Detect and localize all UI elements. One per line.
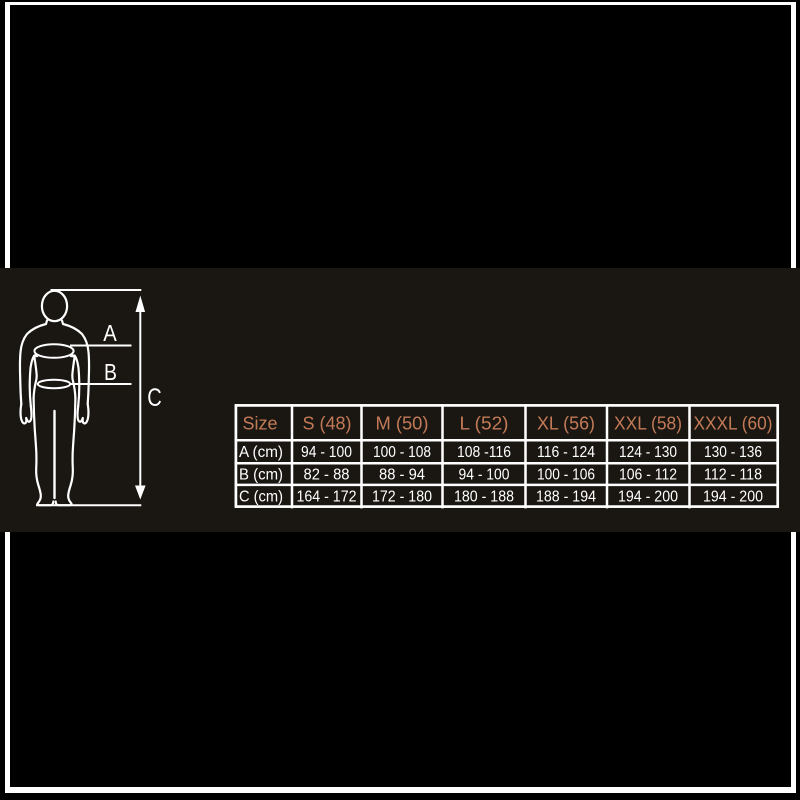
svg-text:100 - 106: 100 - 106 bbox=[537, 467, 595, 484]
svg-text:M (50): M (50) bbox=[376, 414, 429, 434]
svg-text:XXL (58): XXL (58) bbox=[614, 414, 682, 434]
svg-text:B: B bbox=[104, 359, 117, 385]
svg-text:100 - 108: 100 - 108 bbox=[373, 444, 431, 461]
svg-text:164 - 172: 164 - 172 bbox=[297, 489, 357, 506]
svg-text:B (cm): B (cm) bbox=[239, 467, 283, 484]
svg-text:116 - 124: 116 - 124 bbox=[537, 444, 595, 461]
svg-text:XXXL (60): XXXL (60) bbox=[694, 414, 773, 434]
svg-text:94 - 100: 94 - 100 bbox=[301, 444, 352, 461]
svg-text:94 - 100: 94 - 100 bbox=[459, 467, 510, 484]
svg-text:130 - 136: 130 - 136 bbox=[704, 444, 762, 461]
svg-text:108 -116: 108 -116 bbox=[457, 444, 511, 461]
svg-text:A: A bbox=[103, 320, 117, 346]
svg-text:112 - 118: 112 - 118 bbox=[704, 467, 762, 484]
svg-text:124 - 130: 124 - 130 bbox=[619, 444, 677, 461]
svg-text:XL (56): XL (56) bbox=[537, 414, 595, 434]
svg-text:180 - 188: 180 - 188 bbox=[454, 489, 514, 506]
svg-text:C: C bbox=[147, 384, 162, 412]
svg-text:A (cm): A (cm) bbox=[239, 444, 283, 461]
svg-text:S (48): S (48) bbox=[303, 414, 352, 434]
svg-text:106 - 112: 106 - 112 bbox=[619, 467, 677, 484]
svg-text:82 - 88: 82 - 88 bbox=[304, 467, 350, 484]
svg-text:88 - 94: 88 - 94 bbox=[379, 467, 425, 484]
svg-text:172 - 180: 172 - 180 bbox=[372, 489, 432, 506]
svg-text:188 - 194: 188 - 194 bbox=[536, 489, 596, 506]
svg-text:L (52): L (52) bbox=[460, 414, 509, 434]
svg-text:C (cm): C (cm) bbox=[239, 489, 283, 506]
svg-text:Size: Size bbox=[243, 414, 278, 434]
svg-text:194 - 200: 194 - 200 bbox=[703, 489, 763, 506]
svg-text:194 - 200: 194 - 200 bbox=[618, 489, 678, 506]
